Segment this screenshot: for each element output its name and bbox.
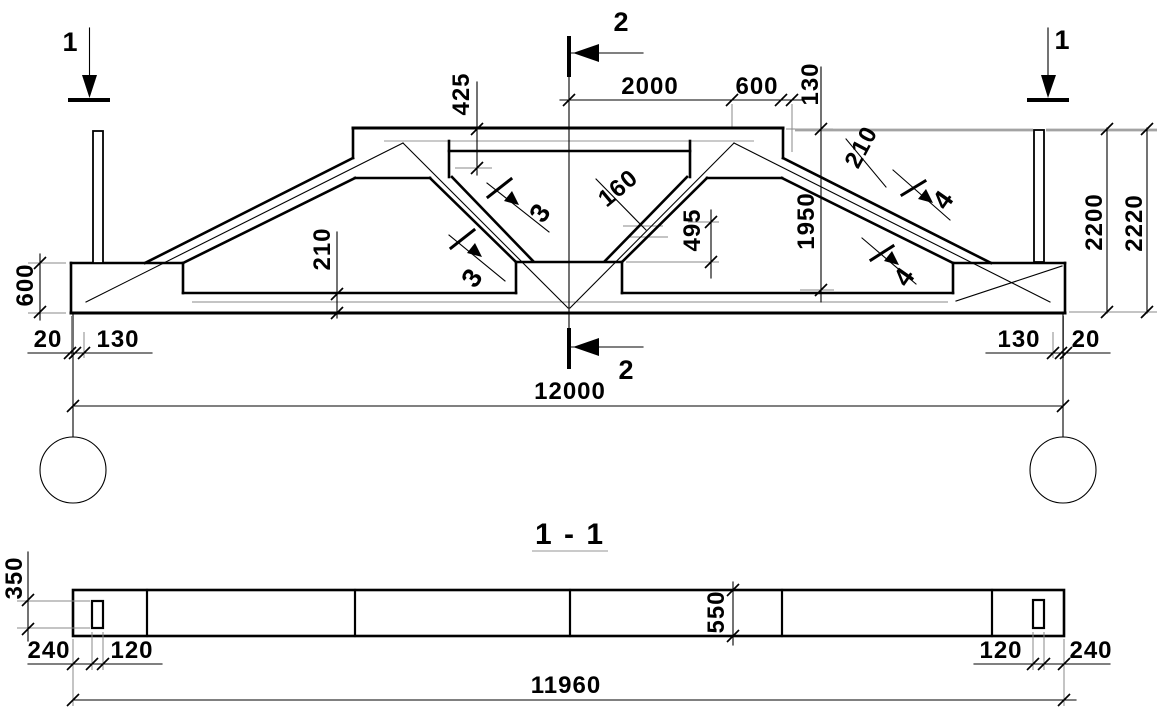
extension-lines bbox=[28, 104, 1157, 358]
dim-495-web: 495 bbox=[679, 208, 706, 251]
section-label-2-bottom: 2 bbox=[618, 355, 633, 385]
dim-600-top: 600 bbox=[735, 73, 778, 100]
dim-600-left: 600 bbox=[12, 263, 39, 306]
dim-160-web: 160 bbox=[593, 164, 643, 212]
arrow-left-icon bbox=[573, 44, 599, 62]
section-label-4-lower: 4 bbox=[887, 262, 920, 292]
section-label-3-upper: 3 bbox=[523, 198, 556, 228]
section-label-3-lower: 3 bbox=[455, 263, 488, 293]
section-view-title: 1 - 1 bbox=[535, 518, 605, 551]
drawing-sheet: 1 1 2 2 2000 600 130 425 1950 2200 2220 … bbox=[0, 0, 1161, 718]
dim-350: 350 bbox=[1, 556, 28, 599]
section-1-1-view: 1 - 1 bbox=[1, 518, 1113, 706]
embedded-post-left bbox=[93, 131, 103, 263]
section-beam-outline bbox=[73, 590, 1064, 636]
dim-210-bottom-chord: 210 bbox=[309, 227, 336, 270]
arrow-icon bbox=[467, 243, 482, 257]
dim-120-right: 120 bbox=[979, 637, 1022, 664]
section-label-4-upper: 4 bbox=[926, 185, 959, 215]
arrow-left-icon bbox=[573, 338, 599, 356]
arrow-down-icon bbox=[1041, 75, 1056, 98]
dim-240-left: 240 bbox=[27, 637, 70, 664]
dim-130-left: 130 bbox=[96, 326, 139, 353]
section-label-1-right: 1 bbox=[1054, 25, 1069, 55]
grid-axis-bubble-right bbox=[1030, 437, 1096, 503]
elevation-view: 1 1 2 2 2000 600 130 425 1950 2200 2220 … bbox=[12, 7, 1157, 503]
dim-1950: 1950 bbox=[793, 192, 820, 249]
post-hole-right bbox=[1033, 600, 1044, 628]
dim-130-top: 130 bbox=[797, 62, 824, 105]
dim-20-right: 20 bbox=[1072, 326, 1101, 353]
dim-2200: 2200 bbox=[1081, 193, 1108, 250]
technical-drawing-girder: 1 1 2 2 2000 600 130 425 1950 2200 2220 … bbox=[0, 0, 1161, 718]
grid-axis-bubble-left bbox=[40, 437, 106, 503]
dim-120-left: 120 bbox=[110, 637, 153, 664]
dim-425: 425 bbox=[448, 72, 475, 115]
dim-12000: 12000 bbox=[534, 378, 606, 405]
dim-240-right: 240 bbox=[1069, 637, 1112, 664]
dim-130-right: 130 bbox=[997, 326, 1040, 353]
dim-550: 550 bbox=[703, 590, 730, 633]
dim-11960: 11960 bbox=[531, 672, 601, 699]
dim-20-left: 20 bbox=[34, 326, 63, 353]
post-hole-left bbox=[92, 601, 103, 628]
dim-2220: 2220 bbox=[1121, 194, 1148, 251]
embedded-post-right bbox=[1034, 130, 1044, 262]
section-label-2-top: 2 bbox=[613, 7, 628, 37]
section-flag-2-top bbox=[569, 38, 643, 75]
section-label-1-left: 1 bbox=[62, 27, 77, 57]
arrow-down-icon bbox=[82, 75, 97, 98]
dim-2000: 2000 bbox=[621, 73, 678, 100]
